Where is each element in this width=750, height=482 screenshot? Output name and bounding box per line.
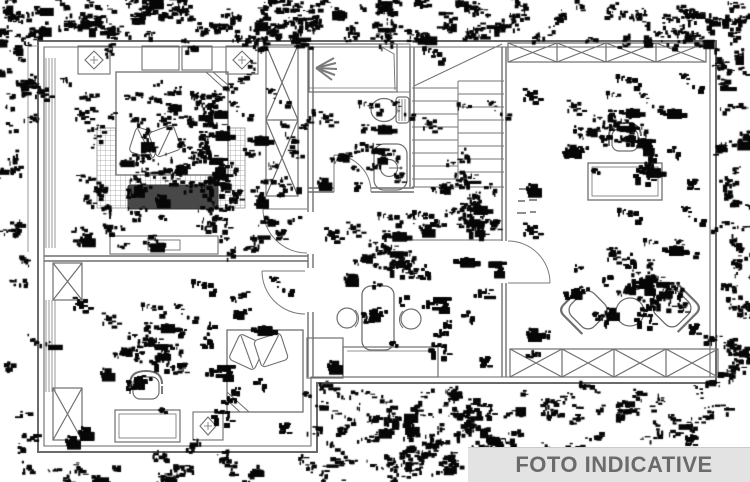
double-bed — [116, 72, 228, 175]
bedroom-2 — [115, 271, 305, 442]
photo-banner: FOTO INDICATIVE — [468, 447, 750, 482]
dresser — [110, 236, 218, 254]
shower-spray-icon — [316, 58, 337, 80]
door-swing — [263, 209, 307, 253]
stool — [399, 309, 421, 329]
wardrobe-x-panel — [53, 388, 82, 440]
bathroom — [309, 44, 410, 190]
bedroom-1 — [78, 46, 307, 254]
desk — [115, 410, 180, 442]
single-bed — [227, 330, 303, 412]
ceiling-light — [193, 412, 223, 440]
staircase — [412, 44, 504, 187]
armchair — [649, 282, 701, 334]
office-chair — [130, 371, 162, 399]
window-band-bottom — [510, 349, 718, 377]
window-band-top — [508, 43, 706, 62]
wardrobe-x-panel — [266, 45, 298, 196]
study-living-room — [508, 123, 702, 336]
dimension-marks — [517, 187, 537, 213]
interior-walls — [44, 47, 506, 377]
kitchen-counter — [307, 338, 438, 378]
floor-plan-drawing — [0, 0, 750, 482]
toilet — [371, 97, 409, 123]
duct — [397, 44, 410, 92]
banner-label: FOTO INDICATIVE — [515, 452, 712, 478]
nightstands — [142, 46, 212, 70]
shower — [309, 44, 397, 92]
desk — [588, 163, 662, 200]
armchair — [558, 284, 610, 336]
door-swing — [508, 241, 550, 283]
wardrobe-x-panel — [53, 263, 82, 300]
side-table — [616, 298, 644, 326]
door-swing — [262, 271, 305, 314]
foot-bench — [128, 185, 218, 209]
sink — [374, 144, 407, 190]
stool — [337, 308, 359, 328]
kitchen-table — [362, 286, 394, 350]
floor-plan-photo: FOTO INDICATIVE — [0, 0, 750, 482]
window-glazing-lines — [28, 42, 55, 392]
ceiling-light — [78, 46, 110, 74]
ceiling-light — [226, 46, 258, 74]
office-chair — [609, 123, 641, 151]
door-swing — [334, 155, 371, 192]
